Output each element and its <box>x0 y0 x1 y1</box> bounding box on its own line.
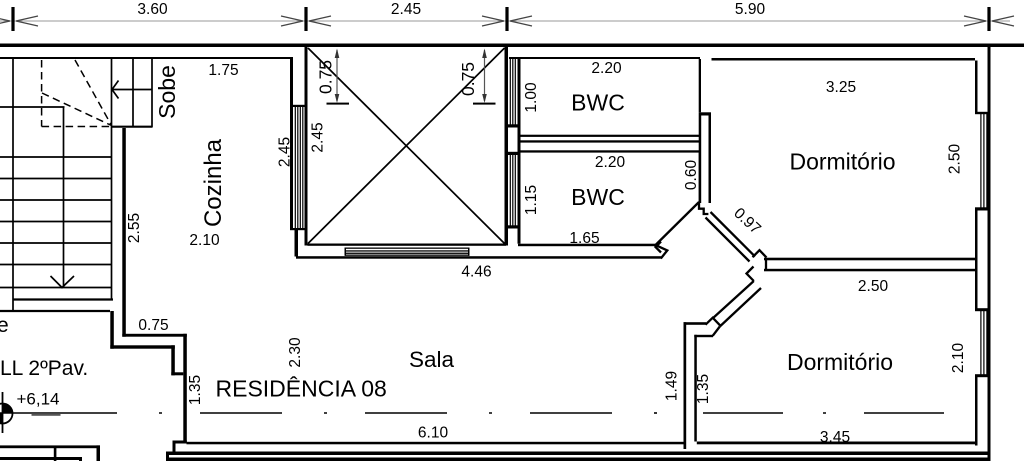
svg-text:4.46: 4.46 <box>461 264 491 281</box>
svg-text:LL 2ºPav.: LL 2ºPav. <box>0 357 88 380</box>
svg-text:0.60: 0.60 <box>683 160 700 191</box>
svg-text:1.35: 1.35 <box>695 374 712 404</box>
svg-text:2.45: 2.45 <box>391 1 421 18</box>
svg-text:1.15: 1.15 <box>523 185 540 215</box>
svg-text:0.75: 0.75 <box>458 62 478 96</box>
svg-text:1.35: 1.35 <box>187 375 204 405</box>
svg-text:2.20: 2.20 <box>591 60 622 77</box>
svg-text:1.00: 1.00 <box>523 82 540 113</box>
svg-text:2.20: 2.20 <box>595 154 626 171</box>
svg-text:BWC: BWC <box>571 90 625 116</box>
svg-text:6.10: 6.10 <box>418 425 449 442</box>
svg-text:2.10: 2.10 <box>189 232 220 249</box>
svg-text:1.49: 1.49 <box>664 371 681 401</box>
svg-text:3.60: 3.60 <box>137 1 168 18</box>
svg-text:2.30: 2.30 <box>287 337 304 368</box>
svg-text:2.55: 2.55 <box>126 213 143 243</box>
svg-text:0.75: 0.75 <box>138 317 168 334</box>
svg-text:Sobe: Sobe <box>154 65 180 119</box>
svg-text:1.75: 1.75 <box>208 62 238 79</box>
svg-text:BWC: BWC <box>571 184 625 210</box>
svg-text:e: e <box>0 314 9 337</box>
svg-text:RESIDÊNCIA 08: RESIDÊNCIA 08 <box>216 376 387 402</box>
svg-text:Dormitório: Dormitório <box>789 149 895 175</box>
svg-text:2.45: 2.45 <box>310 122 327 152</box>
svg-text:3.45: 3.45 <box>820 429 850 446</box>
svg-text:5.90: 5.90 <box>735 1 766 18</box>
svg-text:2.10: 2.10 <box>950 343 967 374</box>
svg-text:Dormitório: Dormitório <box>787 349 893 375</box>
svg-text:Cozinha: Cozinha <box>200 138 227 227</box>
svg-text:+6,14: +6,14 <box>17 390 60 409</box>
svg-text:2.50: 2.50 <box>947 144 964 175</box>
svg-text:3.25: 3.25 <box>826 79 856 96</box>
svg-text:2.45: 2.45 <box>276 137 293 167</box>
svg-text:Sala: Sala <box>409 347 455 372</box>
svg-text:1.65: 1.65 <box>569 230 599 247</box>
svg-text:2.50: 2.50 <box>858 278 889 295</box>
svg-text:0.75: 0.75 <box>316 60 336 94</box>
